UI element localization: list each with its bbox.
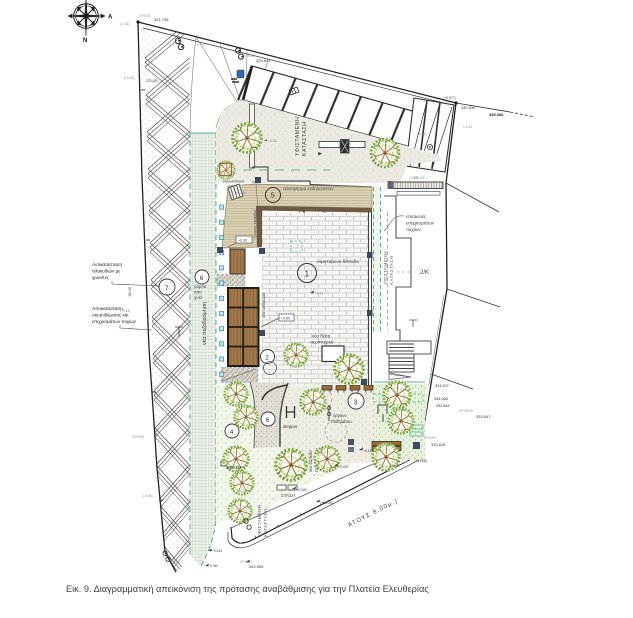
svg-text:6: 6 xyxy=(266,417,270,424)
svg-text:καλωπιστική: καλωπιστική xyxy=(223,180,244,184)
svg-text:απο: απο xyxy=(194,290,202,295)
svg-text:+0.60: +0.60 xyxy=(281,317,291,321)
svg-text:A: A xyxy=(108,15,113,21)
svg-text:ράμπα: ράμπα xyxy=(194,284,207,289)
svg-text:+0.30: +0.30 xyxy=(238,239,247,243)
svg-text:6: 6 xyxy=(200,275,204,282)
svg-text:330.306: 330.306 xyxy=(461,106,475,110)
svg-text:GPS010: GPS010 xyxy=(243,54,255,58)
svg-text:330.306: 330.306 xyxy=(489,112,504,117)
svg-text:+0.185: +0.185 xyxy=(363,449,374,453)
svg-text:νέο δάπεδο: νέο δάπεδο xyxy=(308,450,313,472)
svg-text:ΥΦΙΣΤΑΜΕΝΗ: ΥΦΙΣΤΑΜΕΝΗ xyxy=(257,505,262,537)
svg-text:νέα πεζοδρόμηση: νέα πεζοδρόμηση xyxy=(201,302,208,345)
svg-text:Εικ. 9. Διαγραμματική απεικόνι: Εικ. 9. Διαγραμματική απεικόνιση της πρό… xyxy=(66,584,429,594)
svg-text:GPS018: GPS018 xyxy=(132,435,144,439)
svg-text:τοιχίων: τοιχίων xyxy=(406,227,421,232)
svg-text:γρανίτες: γρανίτες xyxy=(92,275,110,280)
svg-text:4: 4 xyxy=(230,429,234,436)
svg-text:+0.345: +0.345 xyxy=(212,549,222,553)
svg-text:334.068: 334.068 xyxy=(434,397,448,401)
svg-text:πλατφόρμα εκδηλώσεων: πλατφόρμα εκδηλώσεων xyxy=(283,185,334,191)
svg-text:GPS0076: GPS0076 xyxy=(459,409,473,413)
svg-text:1: 1 xyxy=(305,269,310,278)
svg-text:(+0.16): (+0.16) xyxy=(120,309,130,313)
svg-text:επισκευές: επισκευές xyxy=(406,213,427,219)
svg-text:+0.402: +0.402 xyxy=(338,465,349,469)
svg-text:N: N xyxy=(83,38,87,44)
svg-text:332.628: 332.628 xyxy=(431,442,446,447)
svg-text:ΥΦΙΣΤΑΜΕΝΗ: ΥΦΙΣΤΑΜΕΝΗ xyxy=(295,117,301,156)
svg-text:3: 3 xyxy=(354,399,358,406)
svg-text:όργανο: όργανο xyxy=(333,413,347,418)
svg-text:324.207: 324.207 xyxy=(435,384,449,388)
svg-text:Αποκατάσταση: Αποκατάσταση xyxy=(92,305,123,311)
svg-text:333.680: 333.680 xyxy=(146,79,158,83)
svg-text:+1.00: +1.00 xyxy=(268,139,277,143)
svg-text:νέα θέση: νέα θέση xyxy=(312,333,331,339)
svg-text:321.798: 321.798 xyxy=(154,17,169,22)
svg-text:ΥΦΙΣΤΑΜΕΝΗ: ΥΦΙΣΤΑΜΕΝΗ xyxy=(383,251,388,285)
svg-text:ΚΑΤΑΣΤΑΣΗ: ΚΑΤΑΣΤΑΣΗ xyxy=(263,509,268,537)
svg-text:2: 2 xyxy=(265,354,269,361)
svg-text:5: 5 xyxy=(271,193,275,200)
svg-text:(-0.34): (-0.34) xyxy=(143,494,152,498)
svg-text:επιχρισμάτων: επιχρισμάτων xyxy=(406,220,435,226)
svg-text:(+0.34): (+0.34) xyxy=(124,76,134,80)
svg-text:ΚΑΤΑΣΤΑΣΗ: ΚΑΤΑΣΤΑΣΗ xyxy=(389,256,394,285)
svg-text:1-0.10: 1-0.10 xyxy=(463,125,472,129)
svg-text:+0.345: +0.345 xyxy=(296,488,307,492)
svg-text:ΚΑΤΑΣΤΑΣΗ: ΚΑΤΑΣΤΑΣΗ xyxy=(302,121,308,156)
svg-text:333.647: 333.647 xyxy=(476,414,491,419)
svg-text:342.995: 342.995 xyxy=(249,564,264,569)
svg-text:(-0.10): (-0.10) xyxy=(195,42,204,46)
svg-text:χυτό: χυτό xyxy=(194,295,203,300)
svg-text:(+0.977): (+0.977) xyxy=(443,96,456,100)
svg-text:ξύλινες κερκίδες: ξύλινες κερκίδες xyxy=(252,209,257,238)
svg-text:GPS009: GPS009 xyxy=(424,436,436,440)
svg-text:2/K: 2/K xyxy=(420,270,429,276)
svg-text:ποδηλάτου: ποδηλάτου xyxy=(331,419,352,424)
svg-text:330.349: 330.349 xyxy=(413,176,425,180)
svg-text:επιχρισμάτων τοιχίων: επιχρισμάτων τοιχίων xyxy=(92,318,137,324)
svg-text:7: 7 xyxy=(165,285,169,292)
svg-text:Αντικατάσταση: Αντικατάσταση xyxy=(92,261,122,267)
svg-text:329.844: 329.844 xyxy=(256,58,271,63)
svg-text:ΣΤΑΣΗ: ΣΤΑΣΗ xyxy=(281,493,295,498)
svg-text:-0.340: -0.340 xyxy=(209,564,218,568)
svg-text:18.00: 18.00 xyxy=(127,286,132,297)
svg-text:(+0.698): (+0.698) xyxy=(414,459,427,463)
svg-text:υφιστάμενο δάπεδο: υφιστάμενο δάπεδο xyxy=(317,258,359,265)
svg-text:ΒΡΥΣΗ: ΒΡΥΣΗ xyxy=(227,465,241,470)
svg-text:(-0.31): (-0.31) xyxy=(120,22,129,26)
svg-text:(+0.234): (+0.234) xyxy=(320,501,333,505)
svg-text:νέο ανύψωμα: νέο ανύψωμα xyxy=(261,292,266,318)
svg-text:333.861: 333.861 xyxy=(436,404,450,408)
svg-text:περιπτέρου: περιπτέρου xyxy=(310,339,334,345)
svg-text:+0.00: +0.00 xyxy=(315,292,323,296)
svg-text:(-0.05): (-0.05) xyxy=(417,132,426,136)
svg-text:+1.20: +1.20 xyxy=(236,191,245,195)
svg-text:GPS020: GPS020 xyxy=(139,14,151,18)
svg-text:πλακοδιών με: πλακοδιών με xyxy=(92,268,120,274)
svg-text:stepper: stepper xyxy=(283,424,298,429)
